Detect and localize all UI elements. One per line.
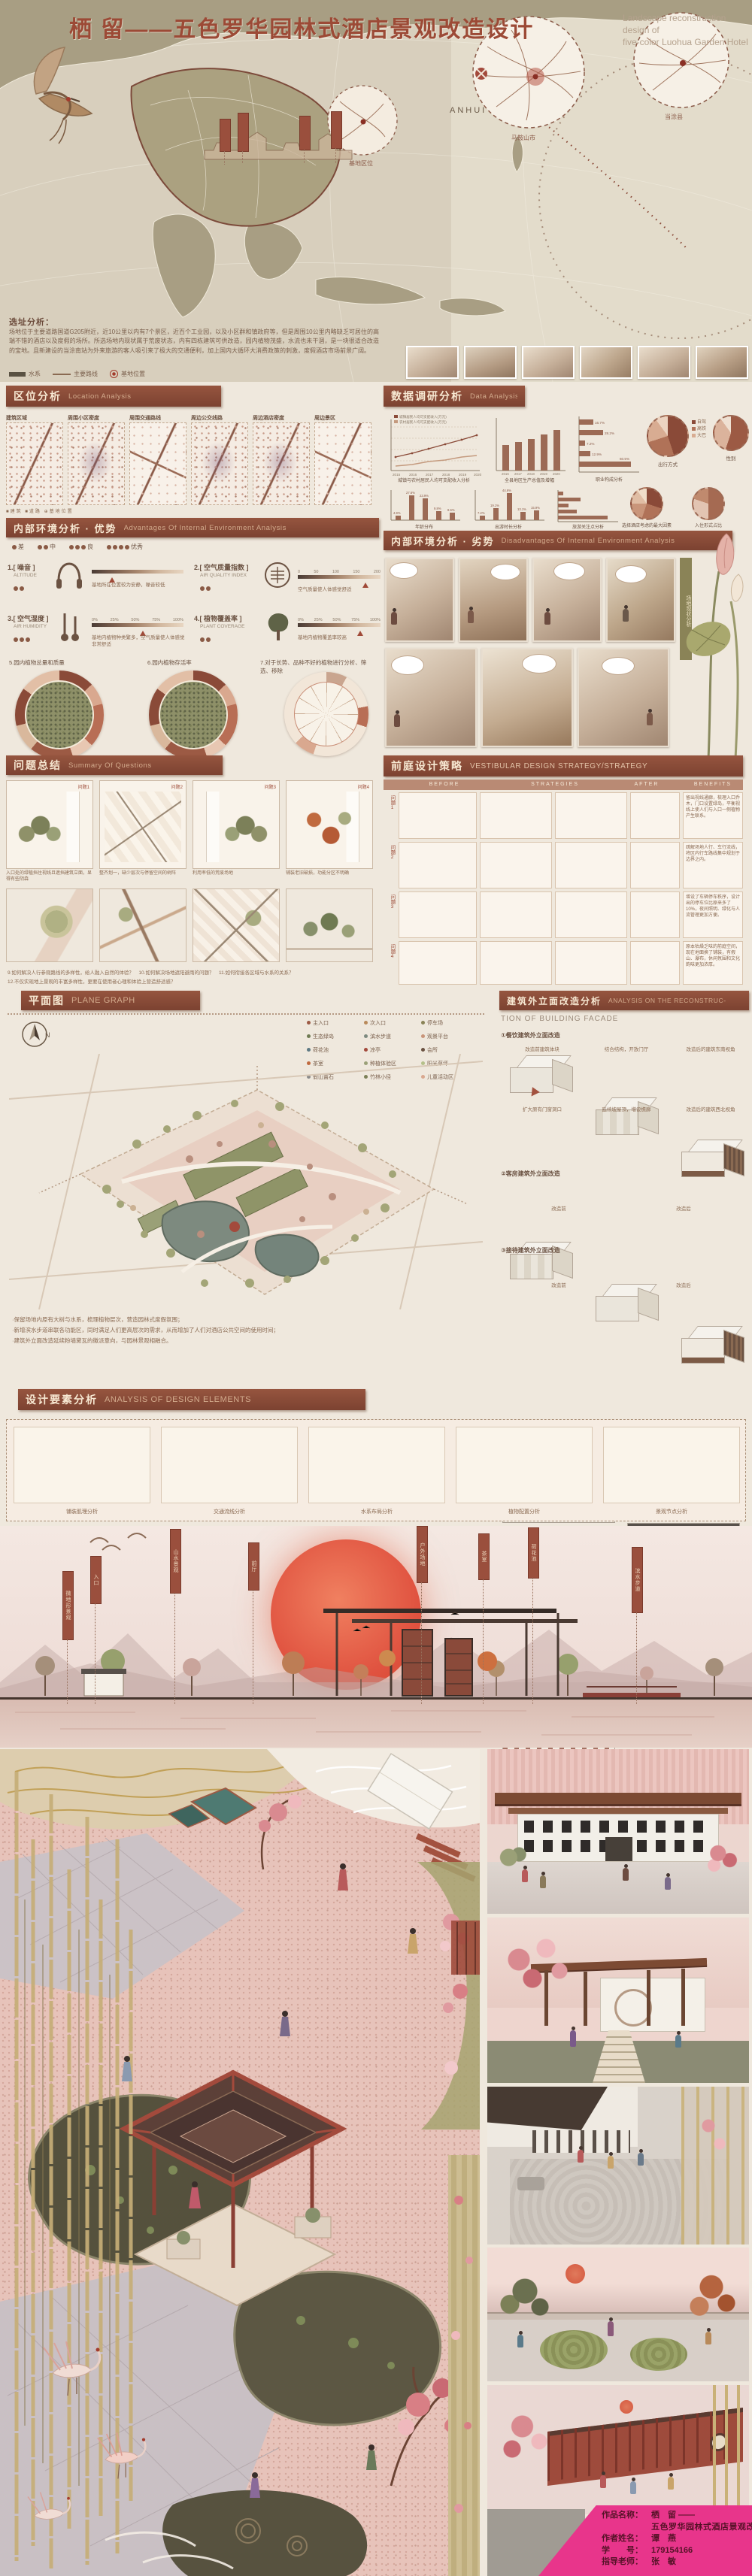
facade-building-diagram <box>594 1282 660 1324</box>
panorama-banner-8: 滨水步道 <box>632 1547 643 1613</box>
svg-text:年龄分布: 年龄分布 <box>415 524 433 530</box>
panorama-banner-7: 荷花池 <box>528 1527 539 1579</box>
header-banner-icon <box>220 119 231 152</box>
credit-label-title: 作品名称： <box>602 2510 651 2522</box>
plan-note-1: ·保留场地内原有大树与水系，梳理植物层次，营造园林式度假氛围； <box>12 1315 463 1324</box>
svg-text:16.7%: 16.7% <box>595 421 605 425</box>
humidity-slider <box>92 623 183 627</box>
section-header-elements: 设计要素分析 ANALYSIS OF DESIGN ELEMENTS <box>18 1389 365 1410</box>
element-caption-1: 铺装肌理分析 <box>14 1508 150 1515</box>
site-legend-icon <box>110 370 118 378</box>
svg-text:7.2%: 7.2% <box>587 442 594 446</box>
gender-pie-title: 性别 <box>710 454 752 462</box>
section-header-facade: 建筑外立面改造分析 ANALYSIS ON THE RECONSTRUC- <box>499 991 749 1010</box>
location-map-5 <box>253 422 310 505</box>
travel-mode-pie-title: 出行方式 <box>638 460 698 468</box>
problem-photo <box>532 558 602 642</box>
question-caption-4: 铺装老旧破损，功能分区不明确 <box>286 870 373 876</box>
credit-label-author: 作者姓名： <box>602 2533 651 2545</box>
element-diagram-3 <box>308 1427 445 1503</box>
facade-row2-cap1: 扩大原有门窗洞口 <box>502 1105 582 1112</box>
panorama-banner-1: 微地形景观 <box>62 1571 74 1640</box>
site-photo <box>522 346 575 379</box>
svg-text:2020: 2020 <box>553 472 560 476</box>
locmap-label-3: 周围交通路线 <box>129 414 186 422</box>
render-terrace-garden <box>487 2248 749 2381</box>
question-panel-1: 问题1 <box>6 780 93 869</box>
facade-building-diagram <box>680 1138 746 1180</box>
facade-row1-cap3: 改造后的建筑东南视角 <box>671 1045 750 1052</box>
anhui-label: ANHUI <box>450 106 487 115</box>
element-caption-3: 水系布局分析 <box>308 1508 445 1515</box>
location-map-2 <box>68 422 125 505</box>
facade-elev-cap-after: 改造后 <box>627 1204 740 1212</box>
strategy-row-tag-4: 问题4 <box>385 944 396 986</box>
panorama-section: 微地形景观 入口 山水景观 前厅 户外场地 茶室 荷花池 滨水步道 <box>0 1526 752 1748</box>
svg-text:2015: 2015 <box>393 473 401 477</box>
income-line-chart: 城镇居民人均可支配收入(万元) 农村居民人均可支配收入(万元) 20152016… <box>385 412 483 483</box>
svg-text:城镇与农村居民人均可支配收入分析: 城镇与农村居民人均可支配收入分析 <box>398 477 470 483</box>
svg-text:4.9%: 4.9% <box>393 511 401 515</box>
poster-title: 栖 留——五色罗华园林式酒店景观改造设计 <box>69 11 534 44</box>
question-diagram <box>286 888 373 962</box>
credit-value-id: 179154166 <box>651 2545 693 2557</box>
facade-elev-cap-after2: 改造后 <box>627 1281 740 1288</box>
location-map-1 <box>6 422 63 505</box>
locmap-label-2: 周围小区密度 <box>68 414 125 422</box>
garden-isometric-illustration <box>0 1749 480 2576</box>
strategy-title-en: VESTIBULAR DESIGN STRATEGY/STRATEGY <box>470 762 647 770</box>
site-photo <box>696 346 748 379</box>
travel-mode-pie-legend: 自驾高铁大巴 <box>692 419 714 440</box>
plan-note-3: ·建筑外立面改造延续粉墙黛瓦的徽派意向，与园林景观相融合。 <box>12 1336 463 1345</box>
section-header-strategy: 前庭设计策略 VESTIBULAR DESIGN STRATEGY/STRATE… <box>384 755 743 776</box>
strategy-row-tag-2: 问题2 <box>385 845 396 887</box>
coverage-slider <box>298 623 381 627</box>
svg-text:2020: 2020 <box>474 473 482 477</box>
data-title-zh: 数据调研分析 <box>391 389 463 404</box>
stay-pie-chart <box>692 487 725 520</box>
rating-legend: 差 中 良 优秀 <box>12 543 143 551</box>
legend-site-label: 基地位置 <box>121 370 145 378</box>
route-legend-icon <box>53 374 71 375</box>
panorama-scene <box>0 1609 752 1699</box>
master-plan-drawing <box>9 1054 483 1309</box>
plan-note-2: ·新增滨水步道串联各功能区，同时满足人们更高层次的需求，从而增加了人们对酒店公共… <box>12 1326 478 1334</box>
questions-title-en: Summary Of Questions <box>68 761 152 770</box>
factor-pie-title: 选择酒店考虑的最大因素 <box>612 522 681 528</box>
credit-value-author: 谭 燕 <box>651 2533 676 2545</box>
section-header-data: 数据调研分析 Data Analysis <box>384 386 525 407</box>
advantages-title-en: Advantages Of Internal Environment Analy… <box>124 524 287 532</box>
svg-text:28.2%: 28.2% <box>605 431 614 435</box>
site-photo <box>580 346 632 379</box>
render-stone-courtyard <box>487 2087 749 2245</box>
lotus-illustration <box>686 526 752 761</box>
question-panel-2: 问题2 <box>99 780 186 869</box>
problem-photo <box>459 558 528 642</box>
legend-water-label: 水系 <box>29 370 41 378</box>
locmap-label-4: 周边公交线路 <box>191 414 248 422</box>
disadvantages-title-zh: 内部环境分析 · 劣势 <box>391 534 495 548</box>
travel-mode-pie-chart <box>647 415 689 457</box>
plan-title-zh: 平面图 <box>29 993 65 1008</box>
facade-row2-cap3: 改造后的建筑西北视角 <box>671 1105 750 1112</box>
header-banner-icon <box>299 116 311 150</box>
svg-text:2016: 2016 <box>502 472 509 476</box>
duration-bar-chart: 7.2%19.1%44.6%13.1%15.9% 出游时长分析 <box>469 487 547 531</box>
location-title-zh: 区位分析 <box>14 389 62 404</box>
svg-text:全县地区生产总值及增幅: 全县地区生产总值及增幅 <box>505 477 554 483</box>
strategy-row-tag-1: 问题1 <box>385 795 396 837</box>
render-red-corridor <box>487 2385 749 2514</box>
data-title-en: Data Analysis <box>470 392 517 401</box>
svg-text:2017: 2017 <box>426 473 434 477</box>
plant-mandala-3 <box>284 672 368 756</box>
svg-text:7.2%: 7.2% <box>478 511 485 515</box>
credit-value-title: 栖 留 —— <box>651 2510 695 2522</box>
question-panel-3: 问题3 <box>193 780 280 869</box>
svg-text:13.1%: 13.1% <box>517 507 526 511</box>
element-diagram-2 <box>161 1427 298 1503</box>
circle2-label: 当涂县 <box>665 113 683 120</box>
tree-icon <box>263 610 293 642</box>
credit-value-tutor: 张 敏 <box>651 2556 676 2568</box>
problem-photo <box>606 558 675 642</box>
headphone-icon <box>54 559 84 592</box>
map-legend: 水系 主要路线 基地位置 <box>9 370 145 378</box>
location-map-4 <box>191 422 248 505</box>
problem-photo <box>385 648 477 747</box>
element-caption-2: 交通流线分析 <box>161 1508 298 1515</box>
adv-item-humidity: 3.[ 空气湿度 ] AIR HUMIDITY 0%25%50%75%100% … <box>8 609 188 655</box>
facade-title-zh: 建筑外立面改造分析 <box>507 994 602 1007</box>
render-hotel-entrance <box>487 1749 749 1914</box>
poster-title-en: Landscape reconstruction design of five-… <box>623 12 749 48</box>
element-diagram-1 <box>14 1427 150 1503</box>
header-map-section: ANHUI 马鞍山市 当涂县 基地区位 栖 留——五色罗华园林式酒店景观改造设计… <box>0 0 752 382</box>
strategy-col-benefits: BENEFITS <box>683 782 743 787</box>
panorama-banner-6: 茶室 <box>478 1533 490 1580</box>
factor-pie-chart <box>630 487 663 520</box>
element-caption-5: 景观节点分析 <box>603 1508 740 1515</box>
location-title-en: Location Analysis <box>68 392 132 401</box>
question-diagram <box>99 888 186 962</box>
svg-text:2018: 2018 <box>442 473 450 477</box>
problem-photo <box>385 558 454 642</box>
thermometer-icon <box>57 610 83 643</box>
facade-row1-cap2: 结合结构，开放门厅 <box>587 1045 666 1052</box>
section-header-questions: 问题总结 Summary Of Questions <box>6 755 223 775</box>
svg-text:23.9%: 23.9% <box>420 494 429 498</box>
age-bar-chart: 4.9%27.6%23.9%9.8%8.6% 年龄分布 <box>385 487 463 531</box>
adv-item-coverage: 4.[ 植物覆盖率 ] PLANT COVERAGE 0%25%50%75%10… <box>194 609 378 655</box>
mandala-title-1: 5.园内植物总量和质量 <box>9 658 122 667</box>
occupation-hbar-chart: 16.7%28.2%7.2%12.9%60.5% 职业构成分析 <box>575 412 642 483</box>
facade-sub1: ①餐饮建筑外立面改造 <box>501 1031 560 1040</box>
strategy-benefit-2: 疏解场地人行、车行流线，将区内行车路线集中规划于边界之内。 <box>686 845 740 863</box>
strategy-title-zh: 前庭设计策略 <box>391 758 463 773</box>
problem-photo <box>578 648 669 747</box>
location-map-6 <box>314 422 371 505</box>
plant-mandala-2 <box>149 670 238 759</box>
air-quality-icon <box>263 561 292 589</box>
strategy-col-strategies: STRATEGIES <box>510 782 600 787</box>
svg-text:19.1%: 19.1% <box>490 504 499 507</box>
elements-title-zh: 设计要素分析 <box>26 1392 98 1407</box>
elements-title-en: ANALYSIS OF DESIGN ELEMENTS <box>105 1395 251 1404</box>
locmap-label-6: 周边景区 <box>314 414 371 422</box>
header-banner-icon <box>238 113 249 152</box>
svg-text:27.6%: 27.6% <box>406 491 415 495</box>
svg-text:农村居民人均可支配收入(万元): 农村居民人均可支配收入(万元) <box>399 419 447 425</box>
interest-hbar-chart: 旅游关注点分析 <box>553 487 621 531</box>
locmap-minilegend: ■建筑 ■道路 ⊕基地位置 <box>6 507 374 514</box>
question-caption-1: 入口处的绿植挡住视线且遮挡建筑立面，显得有些阴森 <box>6 870 93 882</box>
facade-building-diagram <box>508 1054 575 1096</box>
title-en-line2: five-color Luohua Garden Hotel <box>623 36 749 48</box>
site-photo <box>638 346 690 379</box>
render-pavilion-courtyard <box>487 1918 749 2083</box>
facade-row2-cap2: 延续坡屋顶，增设檐廊 <box>587 1105 666 1112</box>
location-map-3 <box>129 422 186 505</box>
site-photo <box>406 346 459 379</box>
legend-route-label: 主要路线 <box>74 370 98 378</box>
question-diagram <box>193 888 280 962</box>
section-header-location: 区位分析 Location Analysis <box>6 386 221 407</box>
question-panel-4: 问题4 <box>286 780 373 869</box>
svg-text:2019: 2019 <box>540 472 547 476</box>
element-diagram-5 <box>603 1427 740 1503</box>
strategy-benefit-1: 留出视线通廊，梳理入口乔木，门口设置绿岛，平衡视线上使人们与入口一侧植物产生联系… <box>686 795 740 819</box>
gender-pie-chart <box>713 415 749 451</box>
site-analysis-title: 选址分析： <box>9 316 54 328</box>
svg-text:8.6%: 8.6% <box>447 508 455 512</box>
poster-board: ANHUI 马鞍山市 当涂县 基地区位 栖 留——五色罗华园林式酒店景观改造设计… <box>0 0 752 2576</box>
facade-title-en2: TION OF BUILDING FACADE <box>501 1015 618 1023</box>
asia-map: ANHUI 马鞍山市 当涂县 基地区位 <box>0 0 752 382</box>
svg-text:2018: 2018 <box>527 472 535 476</box>
site-photo <box>464 346 517 379</box>
reflection-waves <box>0 1705 752 1744</box>
element-caption-4: 植物配置分析 <box>456 1508 593 1515</box>
svg-text:2017: 2017 <box>514 472 522 476</box>
locmap-label-1: 建筑区域 <box>6 414 63 422</box>
plant-mandala-1 <box>15 670 104 759</box>
svg-text:44.6%: 44.6% <box>502 489 511 492</box>
panorama-banner-4: 前厅 <box>248 1542 259 1591</box>
circle1-label: 马鞍山市 <box>511 134 535 141</box>
credit-value-title2: 五色罗华园林式酒店景观改造设计 <box>651 2522 752 2534</box>
facade-elev-cap-before2: 改造前 <box>502 1281 615 1288</box>
strategy-col-after: AFTER <box>617 782 677 787</box>
svg-text:60.5%: 60.5% <box>620 457 629 461</box>
adv-item-noise: 1.[ 噪音 ] ALTITUDE 基地所在位置较为安静，噪音较低 <box>8 558 188 604</box>
adv-item-air-quality: 2.[ 空气质量指数 ] AIR QUALITY INDEX 050100150… <box>194 558 378 604</box>
strategy-benefit-3: 增设了车辆停车秩序，设计出的停车位比原来多了10%，夜间照明、绿化与人流管理更加… <box>686 894 740 919</box>
noise-slider <box>92 570 183 574</box>
question-caption-3: 利用率低的荒废场地 <box>193 870 280 876</box>
section-header-disadvantages: 内部环境分析 · 劣势 Disadvantages Of Internal En… <box>384 531 732 550</box>
crane-icon <box>14 41 96 147</box>
section-header-advantages: 内部环境分析 · 优势 Advantages Of Internal Envir… <box>6 518 379 537</box>
svg-text:2016: 2016 <box>409 473 417 477</box>
advantages-title-zh: 内部环境分析 · 优势 <box>14 521 117 535</box>
disadvantages-title-en: Disadvantages Of Internal Environment An… <box>502 537 675 545</box>
strategy-col-before: BEFORE <box>411 782 478 787</box>
svg-text:15.9%: 15.9% <box>531 506 540 510</box>
panorama-banner-3: 山水景观 <box>170 1529 181 1594</box>
facade-row1-cap1: 改造前建筑体块 <box>502 1045 582 1052</box>
facade-elev-cap-before: 改造前 <box>502 1204 615 1212</box>
svg-text:城镇居民人均可支配收入(万元): 城镇居民人均可支配收入(万元) <box>399 414 447 419</box>
question-caption-2: 整齐划一，缺少层次与停留空间的树阵 <box>99 870 186 876</box>
water-legend-icon <box>9 372 26 377</box>
circle3-label: 基地区位 <box>349 159 373 167</box>
facade-title-en1: ANALYSIS ON THE RECONSTRUC- <box>608 997 726 1004</box>
svg-text:旅游关注点分析: 旅游关注点分析 <box>572 524 604 530</box>
facade-building-diagram <box>594 1096 660 1138</box>
problem-photo <box>481 648 573 747</box>
panorama-banner-5: 户外场地 <box>417 1526 428 1583</box>
mandala-title-2: 6.园内植物存活率 <box>147 658 253 667</box>
title-en-line1: Landscape reconstruction design of <box>623 12 749 36</box>
strategy-row-tag-3: 问题3 <box>385 894 396 937</box>
locmap-label-5: 周边酒店密度 <box>253 414 310 422</box>
strategy-benefit-4: 原本枯燥乏味的前庭空间，现在地面换了铺装，有假山、瀑布，休闲氛围和文化韵味更加浓… <box>686 944 740 968</box>
questions-line-2: 12.不仅实现地上景观的丰富多样性，更要在使用者心理和体验上营造舒适感？ <box>8 977 374 985</box>
facade-sub3: ③接待建筑外立面改造 <box>501 1246 560 1255</box>
facade-sub2: ②客房建筑外立面改造 <box>501 1170 560 1178</box>
gdp-bar-chart: 20162017201820192020 全县地区生产总值及增幅 <box>489 412 569 483</box>
plan-title-en: PLANE GRAPH <box>71 996 135 1005</box>
credit-label-id: 学 号： <box>602 2545 651 2557</box>
svg-text:职业构成分析: 职业构成分析 <box>596 477 623 483</box>
element-diagram-4 <box>456 1427 593 1503</box>
question-diagram <box>6 888 93 962</box>
site-analysis-text: 场地位于主要道路国道G205附近，近10公里以内有7个景区，近百个工业园，以及小… <box>9 328 379 356</box>
questions-title-zh: 问题总结 <box>14 758 62 773</box>
credit-label-tutor: 指导老师： <box>602 2556 651 2568</box>
svg-text:9.8%: 9.8% <box>434 507 441 510</box>
questions-line-1: 9.如何解决人行参观路线的多样性，给人融入自然的体验？ 10.如何解决场地遮阳避… <box>8 968 374 976</box>
air-quality-slider <box>298 575 381 579</box>
section-header-plan: 平面图 PLANE GRAPH <box>21 991 200 1010</box>
facade-building-diagram <box>680 1324 746 1367</box>
svg-text:出游时长分析: 出游时长分析 <box>495 524 522 530</box>
header-banner-icon <box>331 111 342 149</box>
svg-text:12.9%: 12.9% <box>592 453 602 456</box>
svg-text:2019: 2019 <box>459 473 467 477</box>
panorama-banner-2: 入口 <box>90 1556 102 1604</box>
